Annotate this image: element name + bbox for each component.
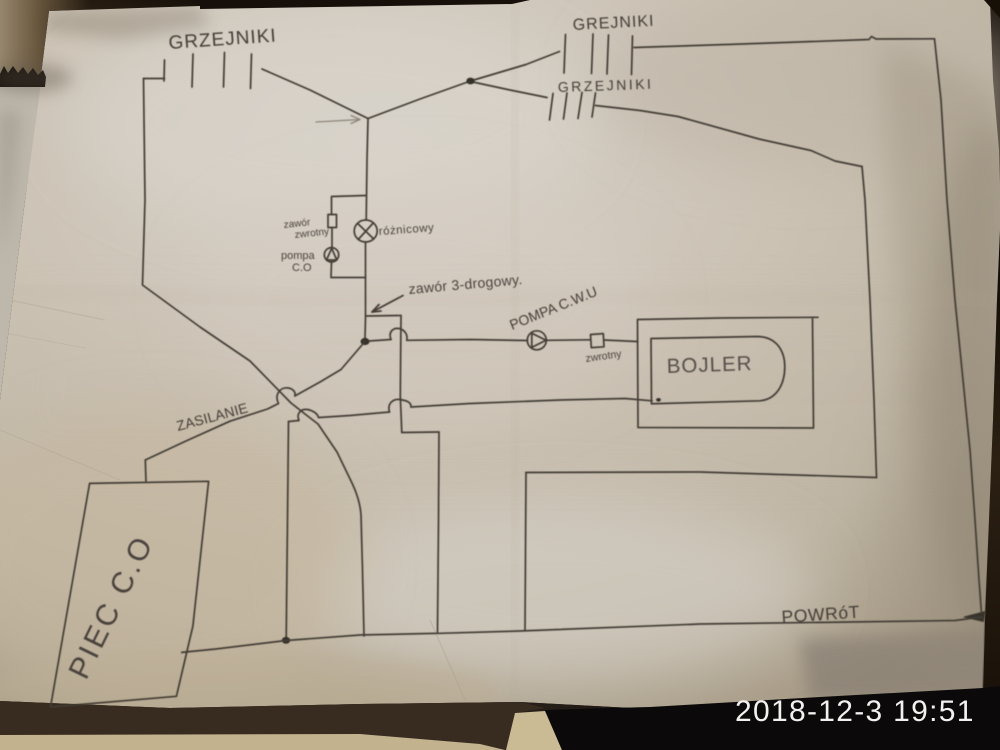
svg-text:BOJLER: BOJLER: [666, 352, 753, 378]
svg-text:GRZEJNIKI: GRZEJNIKI: [558, 76, 654, 95]
svg-text:C.O: C.O: [292, 262, 312, 274]
svg-text:2018-12-3 19:51: 2018-12-3 19:51: [735, 695, 975, 728]
svg-text:pompa: pompa: [281, 250, 316, 262]
